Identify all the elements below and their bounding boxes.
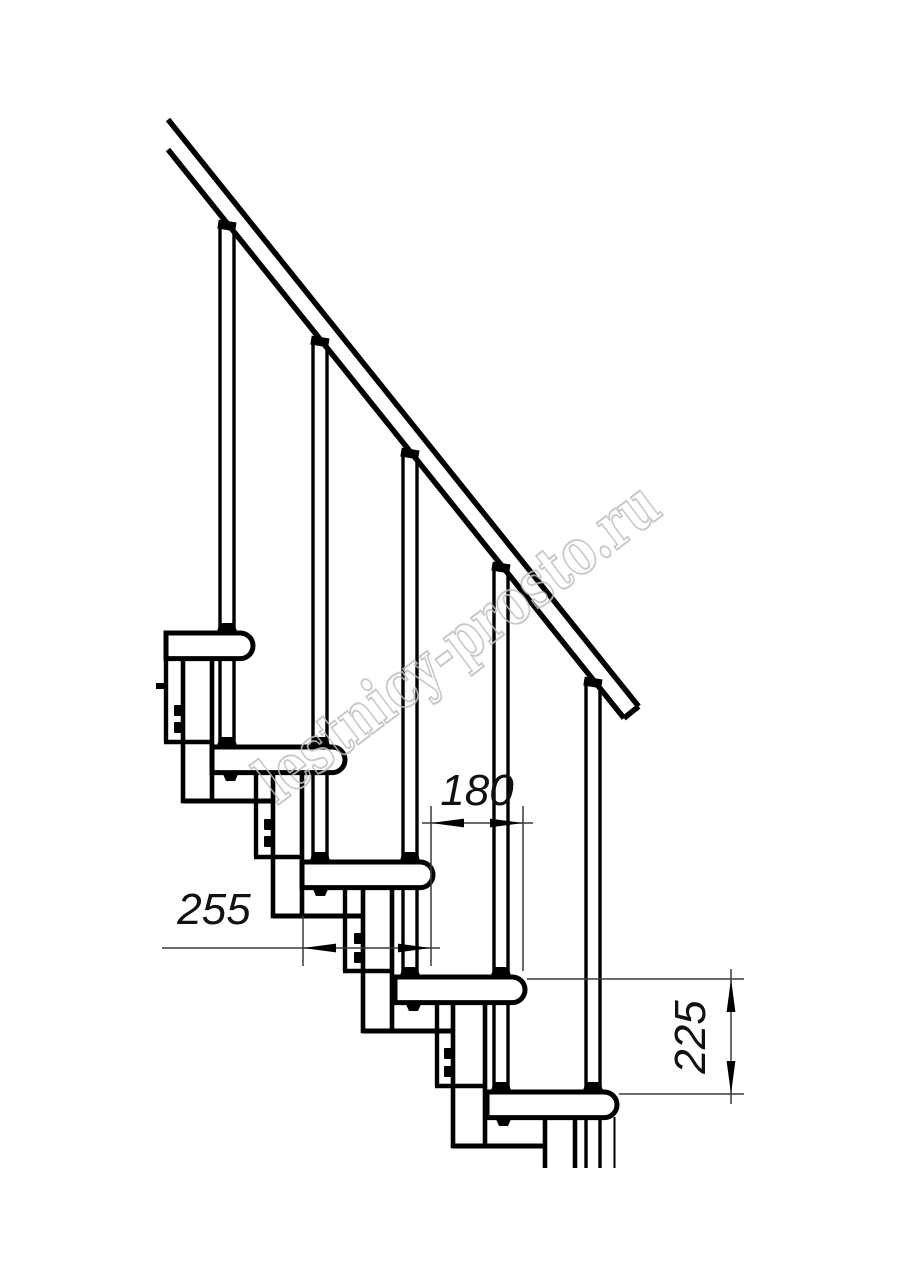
dimension-step-run: 180 [422, 766, 533, 971]
module-stub [156, 683, 168, 689]
arrowhead-left [303, 944, 336, 953]
dimension-step-height: 225 [527, 969, 744, 1104]
dimension-value-225: 225 [666, 1000, 715, 1075]
module-post [183, 658, 212, 801]
staircase-technical-drawing: 180 255 225 lestnicy-prosto.ru [0, 0, 914, 1280]
tread [395, 977, 525, 1003]
dimension-value-180: 180 [440, 766, 514, 815]
tread [302, 862, 433, 888]
module-post [363, 887, 392, 1031]
baluster-rod [220, 223, 234, 748]
tread [487, 1092, 617, 1118]
tread [166, 633, 253, 659]
dimension-value-255: 255 [176, 885, 251, 934]
arrowhead-down [727, 1061, 736, 1094]
arrowhead-left [431, 819, 464, 828]
staircase-drawing-page: 180 255 225 lestnicy-prosto.ru [0, 0, 914, 1280]
module-post [453, 1002, 485, 1146]
arrowhead-up [727, 979, 736, 1012]
